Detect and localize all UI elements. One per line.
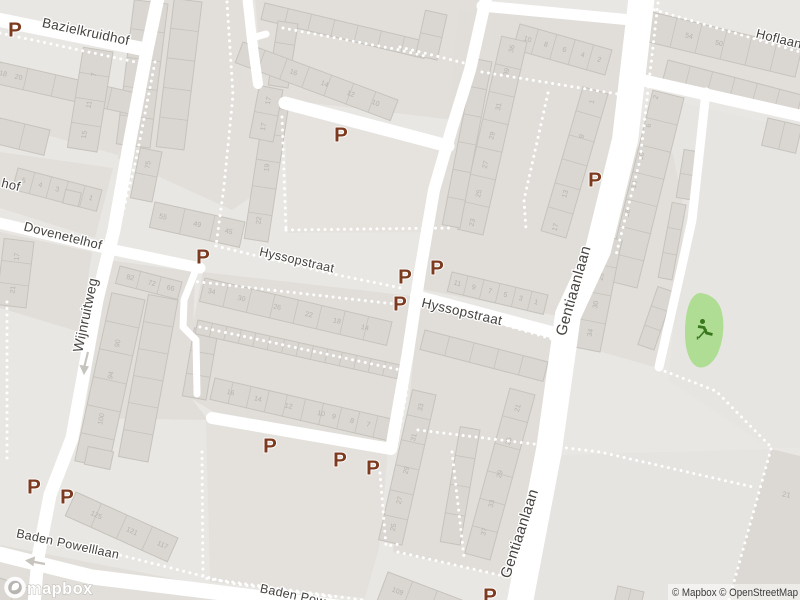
svg-text:P: P: [366, 457, 380, 480]
svg-text:P: P: [430, 257, 444, 280]
svg-text:21: 21: [9, 285, 17, 294]
svg-text:P: P: [398, 266, 412, 289]
svg-text:17: 17: [265, 96, 273, 105]
svg-text:P: P: [263, 435, 277, 458]
svg-text:30: 30: [592, 300, 600, 309]
svg-text:22: 22: [255, 216, 263, 225]
svg-text:75: 75: [144, 160, 152, 169]
svg-text:17: 17: [13, 252, 21, 261]
svg-text:19: 19: [263, 163, 271, 172]
svg-text:P: P: [483, 585, 497, 600]
svg-text:P: P: [334, 124, 348, 147]
svg-text:P: P: [196, 246, 210, 269]
svg-text:17: 17: [260, 122, 268, 131]
svg-text:15: 15: [81, 130, 89, 139]
svg-text:P: P: [8, 19, 22, 42]
svg-text:P: P: [60, 486, 74, 509]
svg-text:P: P: [588, 169, 602, 192]
svg-text:11: 11: [86, 100, 94, 108]
svg-text:P: P: [333, 449, 347, 472]
svg-text:mapbox: mapbox: [27, 580, 93, 598]
svg-text:P: P: [393, 293, 407, 316]
svg-text:P: P: [27, 476, 41, 499]
svg-text:© Mapbox © OpenStreetMap: © Mapbox © OpenStreetMap: [672, 587, 798, 599]
svg-text:34: 34: [587, 328, 595, 337]
